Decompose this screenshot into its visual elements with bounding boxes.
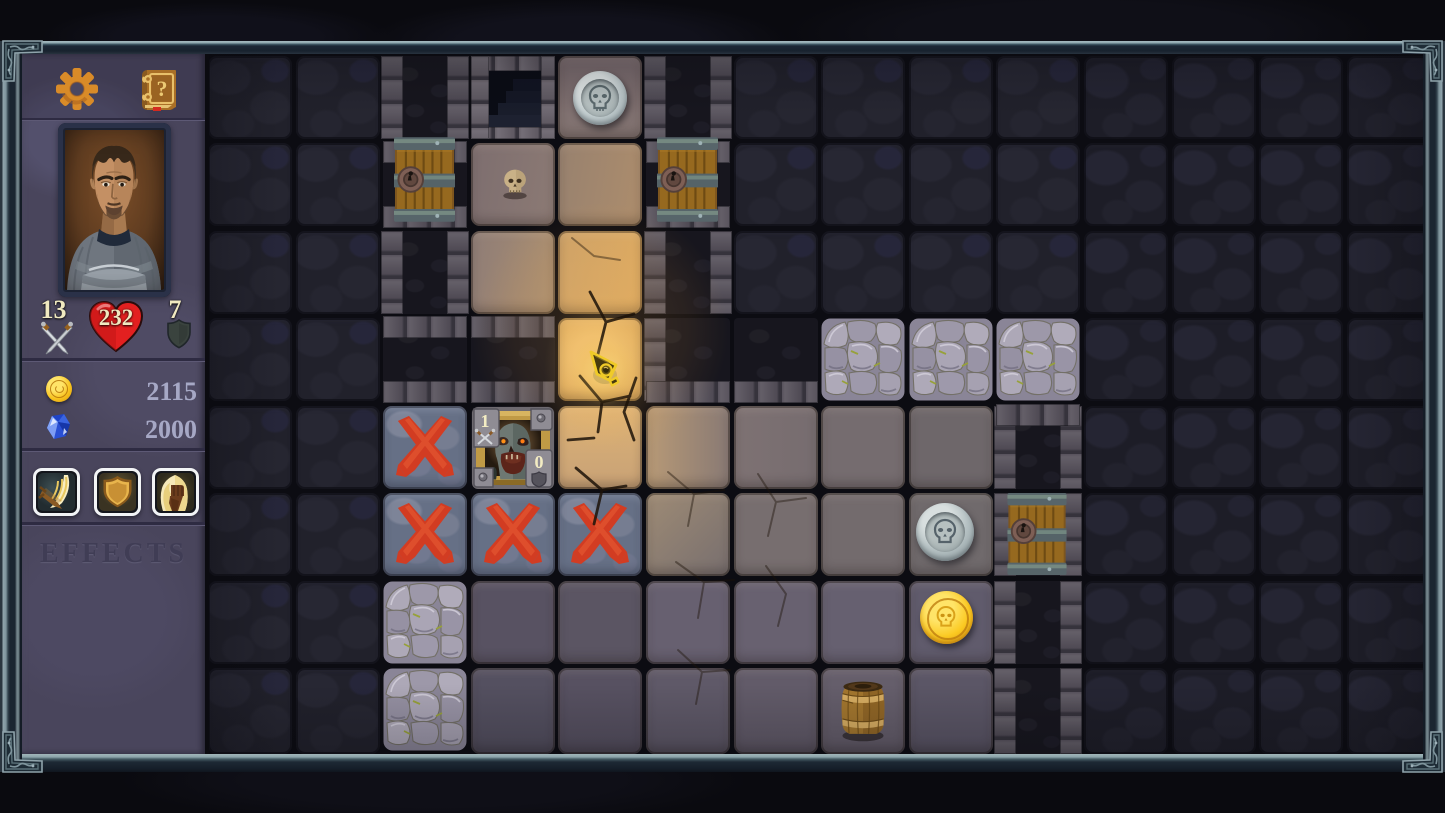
svg-text:1: 1 (480, 411, 489, 431)
svg-text:?: ? (157, 76, 168, 101)
svg-text:0: 0 (534, 452, 543, 472)
